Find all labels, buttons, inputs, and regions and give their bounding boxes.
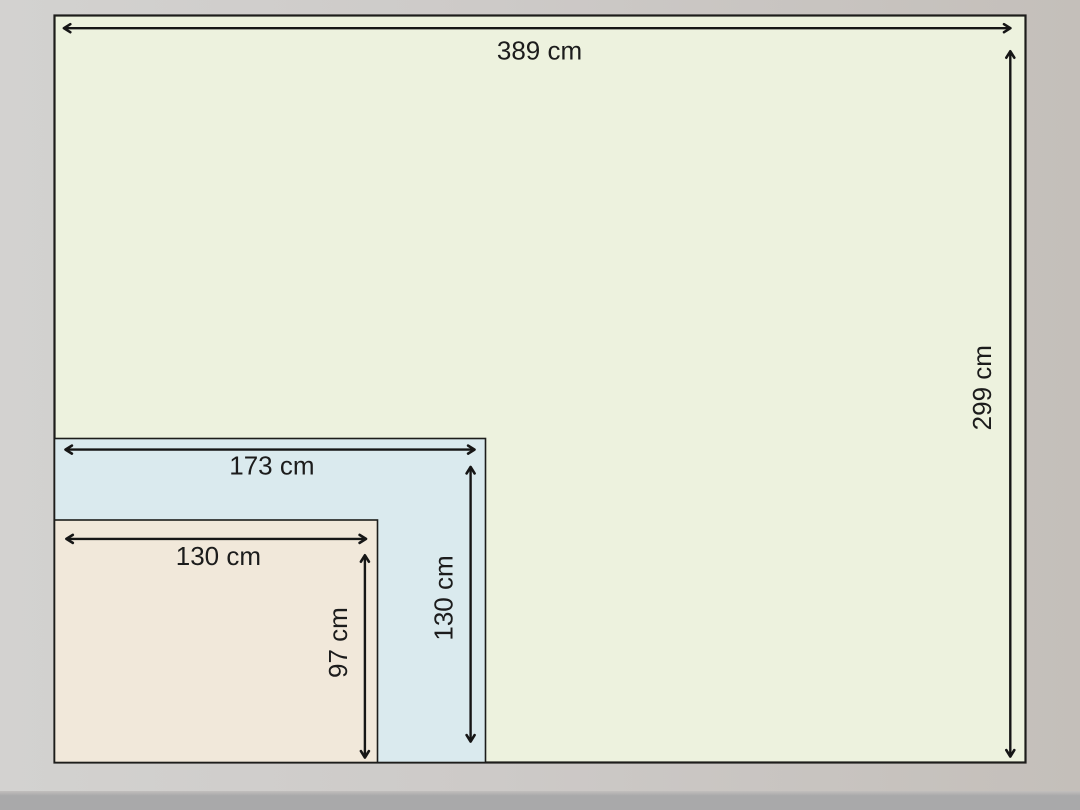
svg-text:97 cm: 97 cm [323, 607, 353, 678]
svg-text:130 cm: 130 cm [176, 541, 261, 571]
svg-text:130 cm: 130 cm [429, 555, 459, 640]
svg-text:389 cm: 389 cm [497, 35, 582, 65]
svg-text:173 cm: 173 cm [229, 451, 314, 481]
svg-text:299 cm: 299 cm [967, 345, 997, 430]
